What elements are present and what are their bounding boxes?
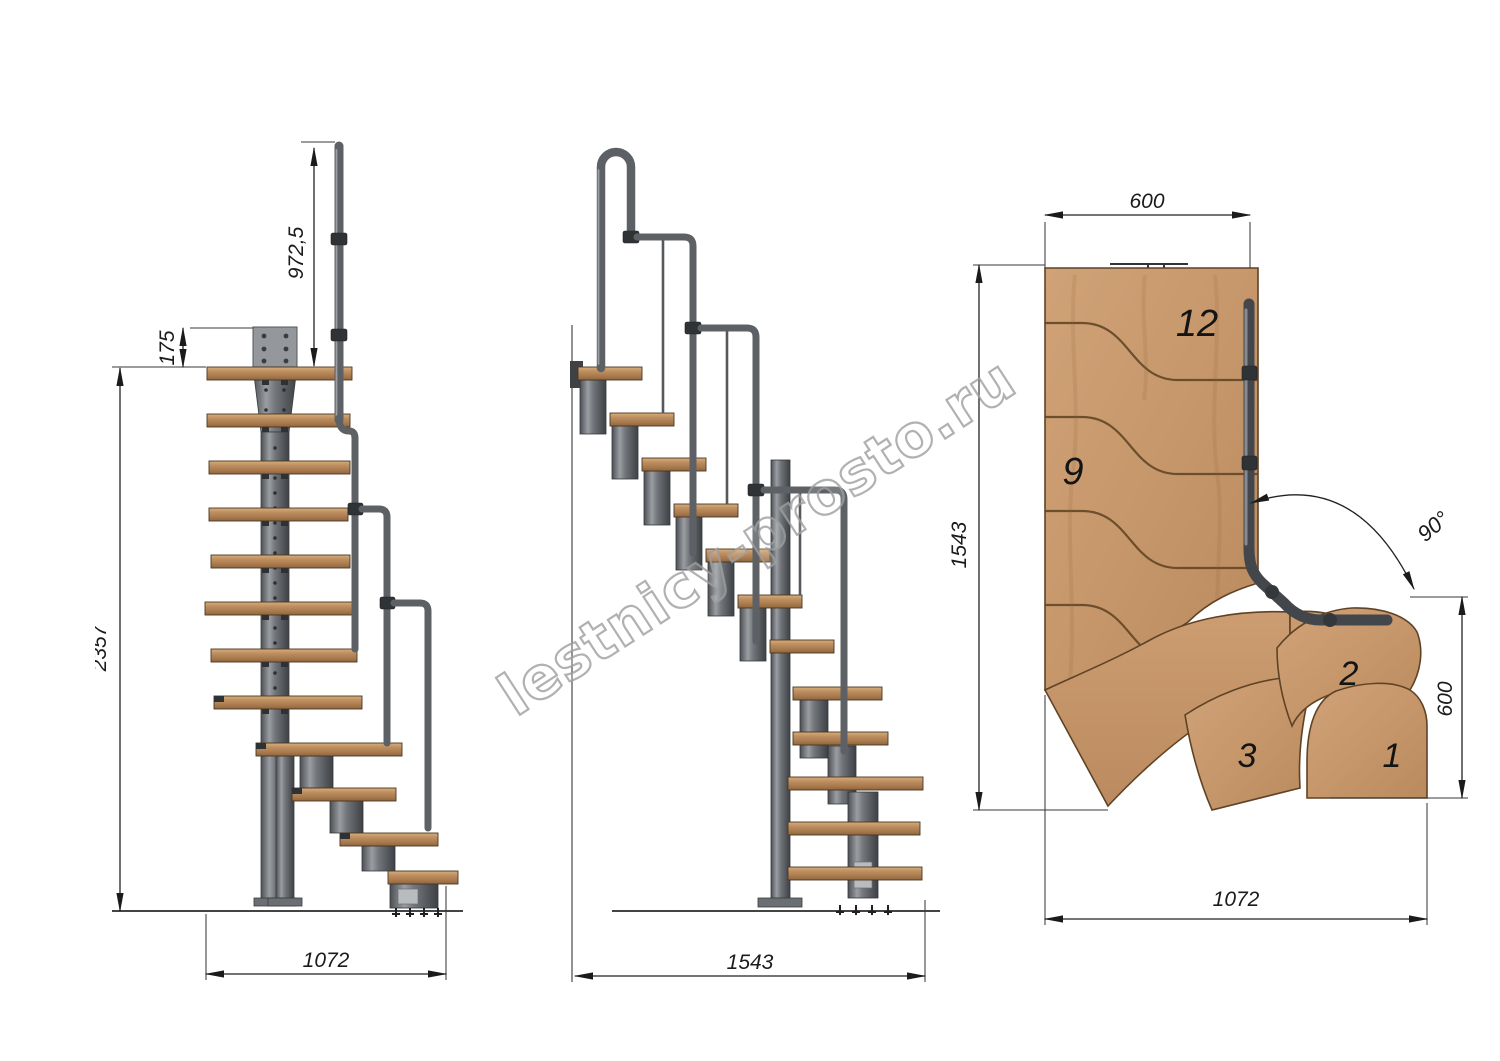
step-number-2: 2 xyxy=(1339,655,1359,693)
stair-technical-drawing: 972,5 175 2357 1072 xyxy=(0,0,1500,1061)
dim-label-plate-offset: 175 xyxy=(156,330,179,365)
dim-label-turn-angle: 90° xyxy=(1412,506,1454,547)
dim-label-rail-height: 972,5 xyxy=(285,226,308,279)
anchor-bolts xyxy=(392,908,442,917)
plan-handrail xyxy=(1242,304,1387,627)
dim-label-top-width: 600 xyxy=(1129,190,1164,213)
dim-label-bottom-run: 1072 xyxy=(1213,888,1260,911)
dim-label-total-height: 2357 xyxy=(95,623,111,672)
plan-steps xyxy=(1045,268,1427,810)
step-number-12: 12 xyxy=(1176,303,1218,345)
anchor-bolts xyxy=(836,905,892,915)
step-1-shape xyxy=(1307,683,1427,798)
dim-turn-angle: 90° xyxy=(1251,495,1454,589)
dim-label-side-run: 1072 xyxy=(303,949,350,972)
dim-plate-offset: 175 xyxy=(156,328,253,367)
dim-label-front-run: 1543 xyxy=(727,951,774,974)
step-number-3: 3 xyxy=(1238,737,1257,775)
handrail-loop xyxy=(601,152,631,368)
front-elevation-view: 1543 xyxy=(555,130,980,1000)
side-elevation-view: 972,5 175 2357 1072 xyxy=(95,130,470,990)
dim-label-left-depth: 1543 xyxy=(950,521,971,568)
dim-top-width: 600 xyxy=(1045,190,1250,268)
step-number-1: 1 xyxy=(1383,737,1402,775)
dim-label-right-width: 600 xyxy=(1434,681,1457,716)
plan-view: 12 9 2 3 1 90° 600 1543 600 1072 xyxy=(950,190,1500,950)
side-handrails xyxy=(331,146,428,828)
dim-total-height: 2357 xyxy=(95,367,206,911)
step-number-9: 9 xyxy=(1062,451,1083,493)
